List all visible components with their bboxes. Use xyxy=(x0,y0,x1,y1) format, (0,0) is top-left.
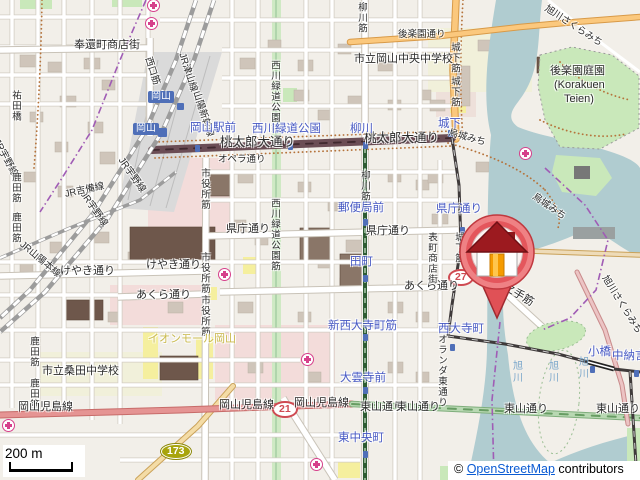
scale-bar: 200 m xyxy=(3,445,85,477)
scale-label: 200 m xyxy=(5,446,83,461)
attribution-suffix: contributors xyxy=(555,462,624,476)
map-canvas[interactable]: 岡山岡山2721173 奉還町商店街祐田橋西口筋JR津山線山陽新幹線JR宇野線J… xyxy=(0,0,640,480)
openstreetmap-link[interactable]: OpenStreetMap xyxy=(467,462,555,476)
attribution-copyright: © xyxy=(454,462,467,476)
house-location-pin[interactable] xyxy=(455,206,539,320)
attribution-bar: © OpenStreetMap contributors xyxy=(448,461,640,480)
base-map-graphics xyxy=(0,0,640,480)
scale-rule xyxy=(9,462,73,472)
